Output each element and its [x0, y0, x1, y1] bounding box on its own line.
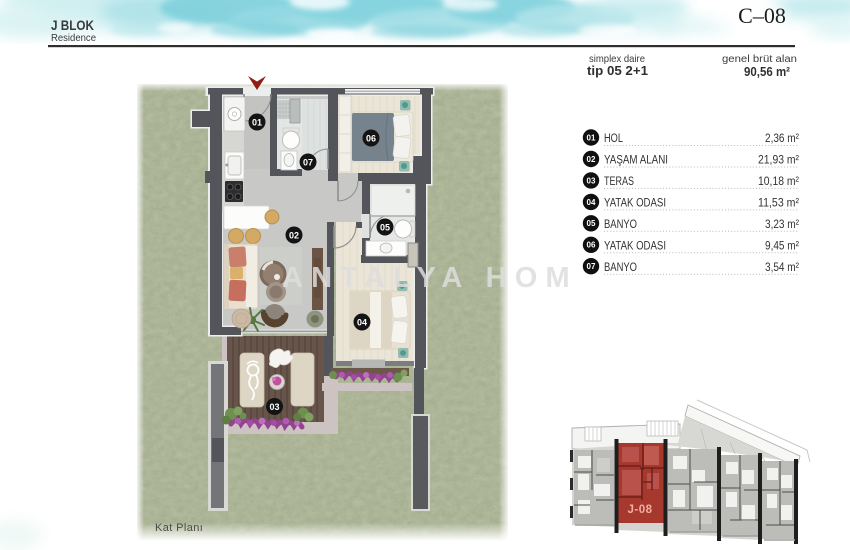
svg-text:02: 02 [289, 230, 299, 240]
svg-text:04: 04 [357, 317, 367, 327]
svg-text:3,54 m²: 3,54 m² [765, 260, 799, 274]
svg-text:07: 07 [587, 262, 596, 271]
svg-text:11,53 m²: 11,53 m² [758, 196, 799, 210]
svg-text:C–08: C–08 [738, 3, 786, 28]
svg-text:01: 01 [252, 117, 262, 127]
svg-text:TERAS: TERAS [604, 174, 634, 188]
svg-text:90,56 m²: 90,56 m² [744, 64, 791, 79]
svg-text:tip 05 2+1: tip 05 2+1 [587, 63, 648, 78]
svg-text:01: 01 [587, 133, 596, 142]
svg-text:9,45 m²: 9,45 m² [765, 238, 799, 252]
svg-text:03: 03 [587, 176, 596, 185]
svg-text:HOL: HOL [604, 131, 623, 145]
svg-text:YATAK ODASI: YATAK ODASI [604, 238, 666, 252]
svg-text:Residence: Residence [51, 32, 96, 44]
svg-text:04: 04 [587, 198, 596, 207]
svg-text:3,23 m²: 3,23 m² [765, 217, 799, 231]
svg-text:YATAK ODASI: YATAK ODASI [604, 196, 666, 210]
svg-text:2,36 m²: 2,36 m² [765, 131, 799, 145]
svg-text:YAŞAM ALANI: YAŞAM ALANI [604, 153, 668, 167]
svg-text:07: 07 [303, 157, 313, 167]
svg-text:J BLOK: J BLOK [51, 17, 94, 33]
svg-text:J-08: J-08 [627, 504, 652, 516]
svg-text:BANYO: BANYO [604, 217, 637, 231]
svg-text:21,93 m²: 21,93 m² [758, 153, 799, 167]
svg-text:02: 02 [587, 155, 596, 164]
svg-text:05: 05 [587, 219, 596, 228]
svg-text:10,18 m²: 10,18 m² [758, 174, 799, 188]
svg-text:BANYO: BANYO [604, 260, 637, 274]
svg-text:05: 05 [380, 222, 390, 232]
svg-text:06: 06 [587, 241, 596, 250]
svg-text:ANTALYA HOM: ANTALYA HOM [282, 262, 578, 294]
svg-text:Kat Planı: Kat Planı [155, 522, 203, 534]
svg-text:03: 03 [269, 402, 279, 412]
svg-text:06: 06 [366, 133, 376, 143]
